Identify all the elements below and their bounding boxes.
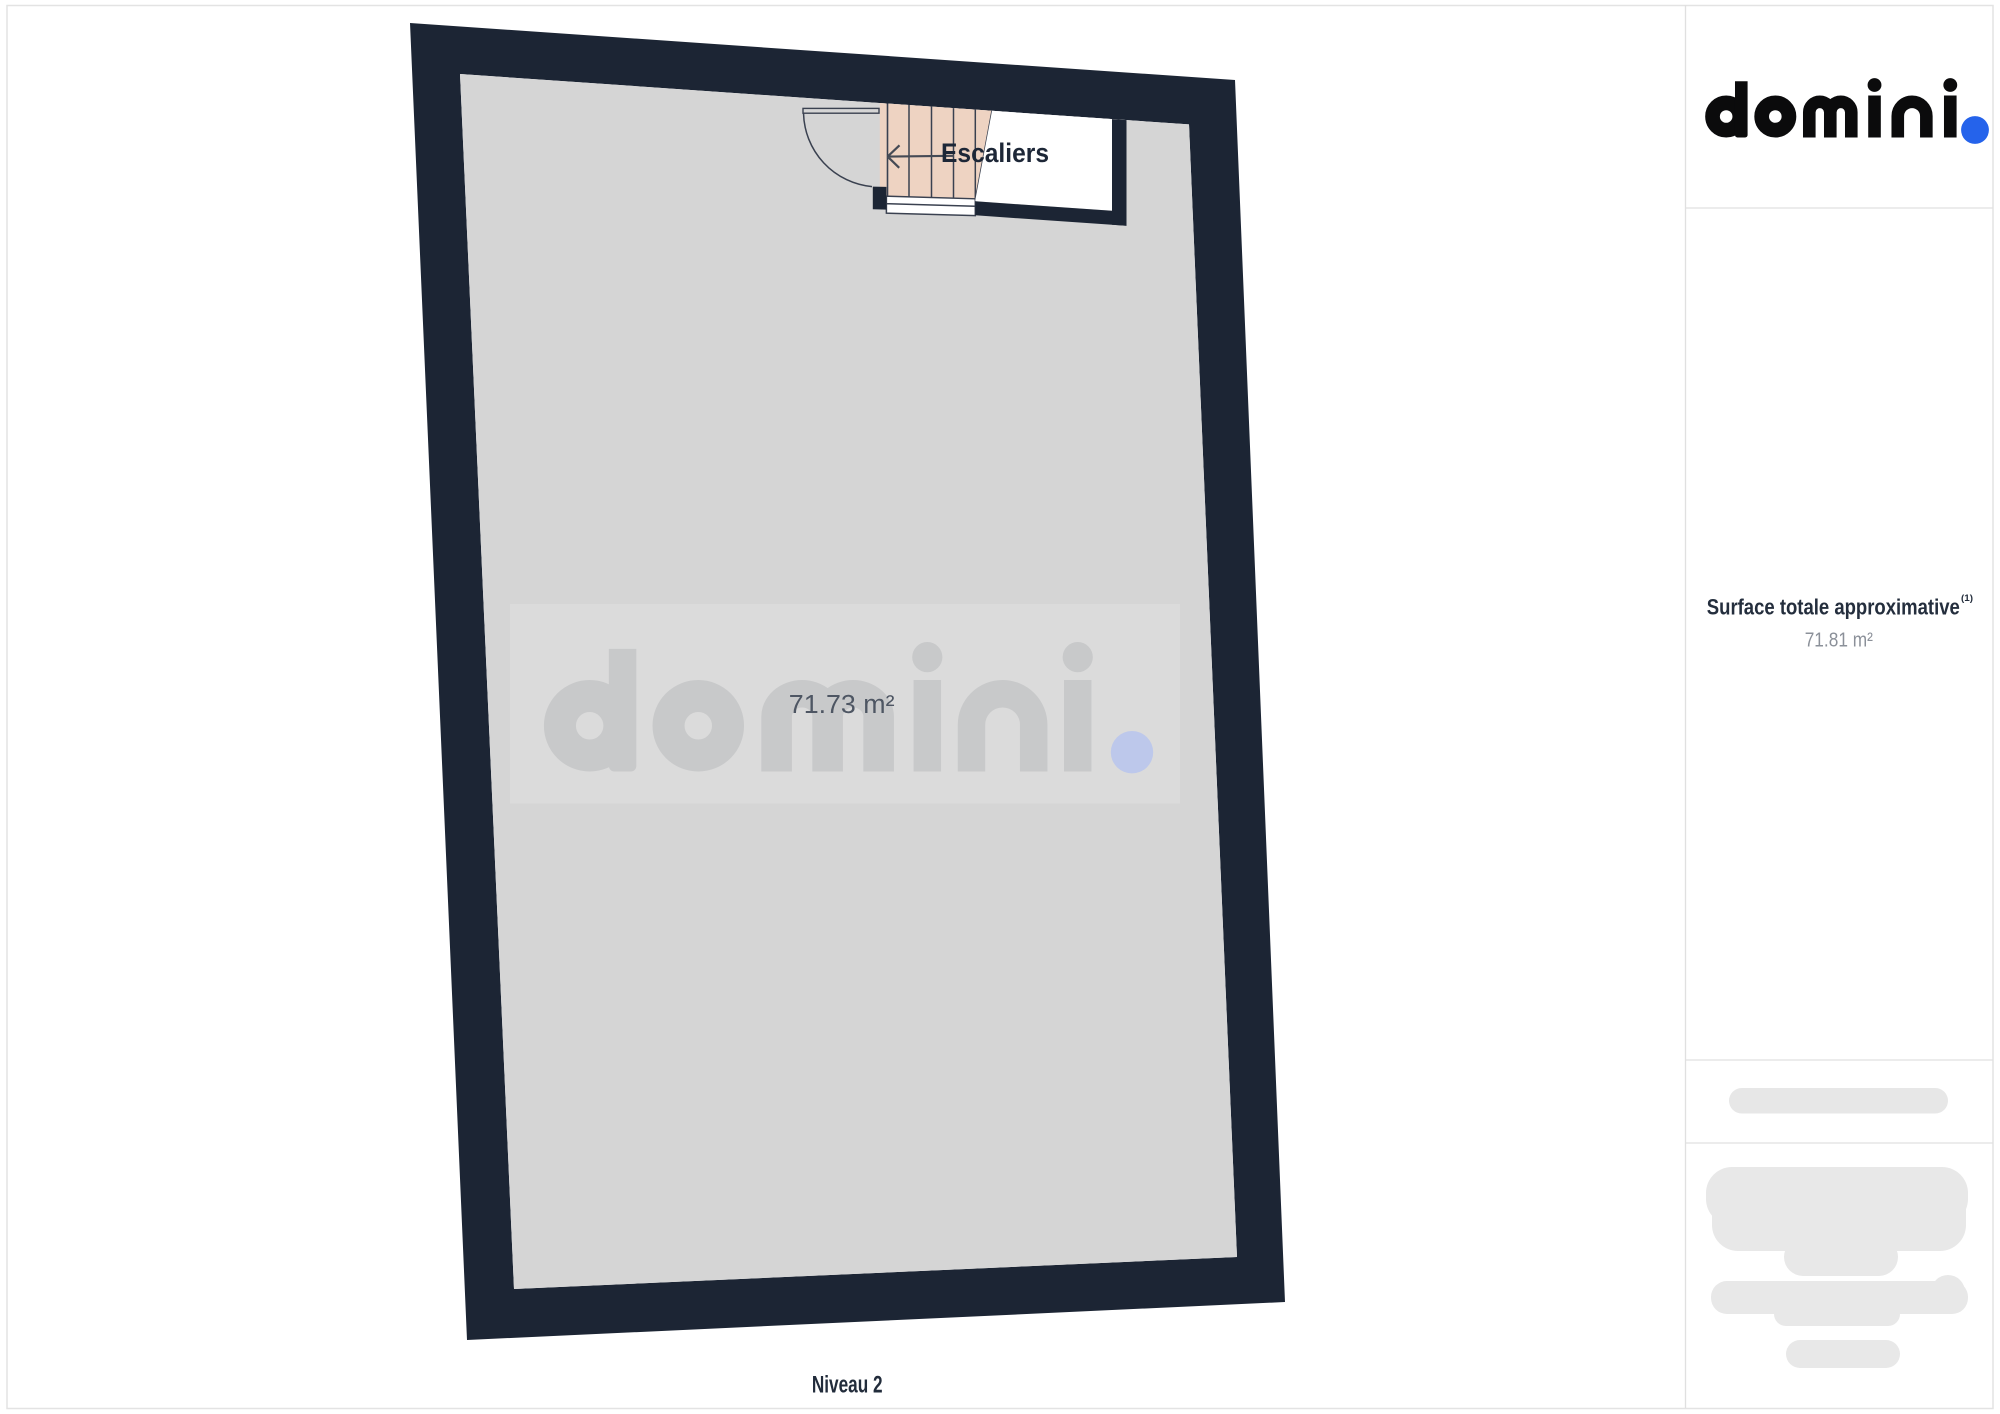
svg-text:Niveau 2: Niveau 2 [812,1372,883,1399]
svg-text:(1): (1) [1961,593,1973,603]
svg-text:71.81 m²: 71.81 m² [1805,630,1873,652]
svg-text:Escaliers: Escaliers [941,138,1049,168]
svg-text:71.73 m²: 71.73 m² [789,691,895,719]
svg-text:Surface totale approximative: Surface totale approximative [1707,595,1960,620]
